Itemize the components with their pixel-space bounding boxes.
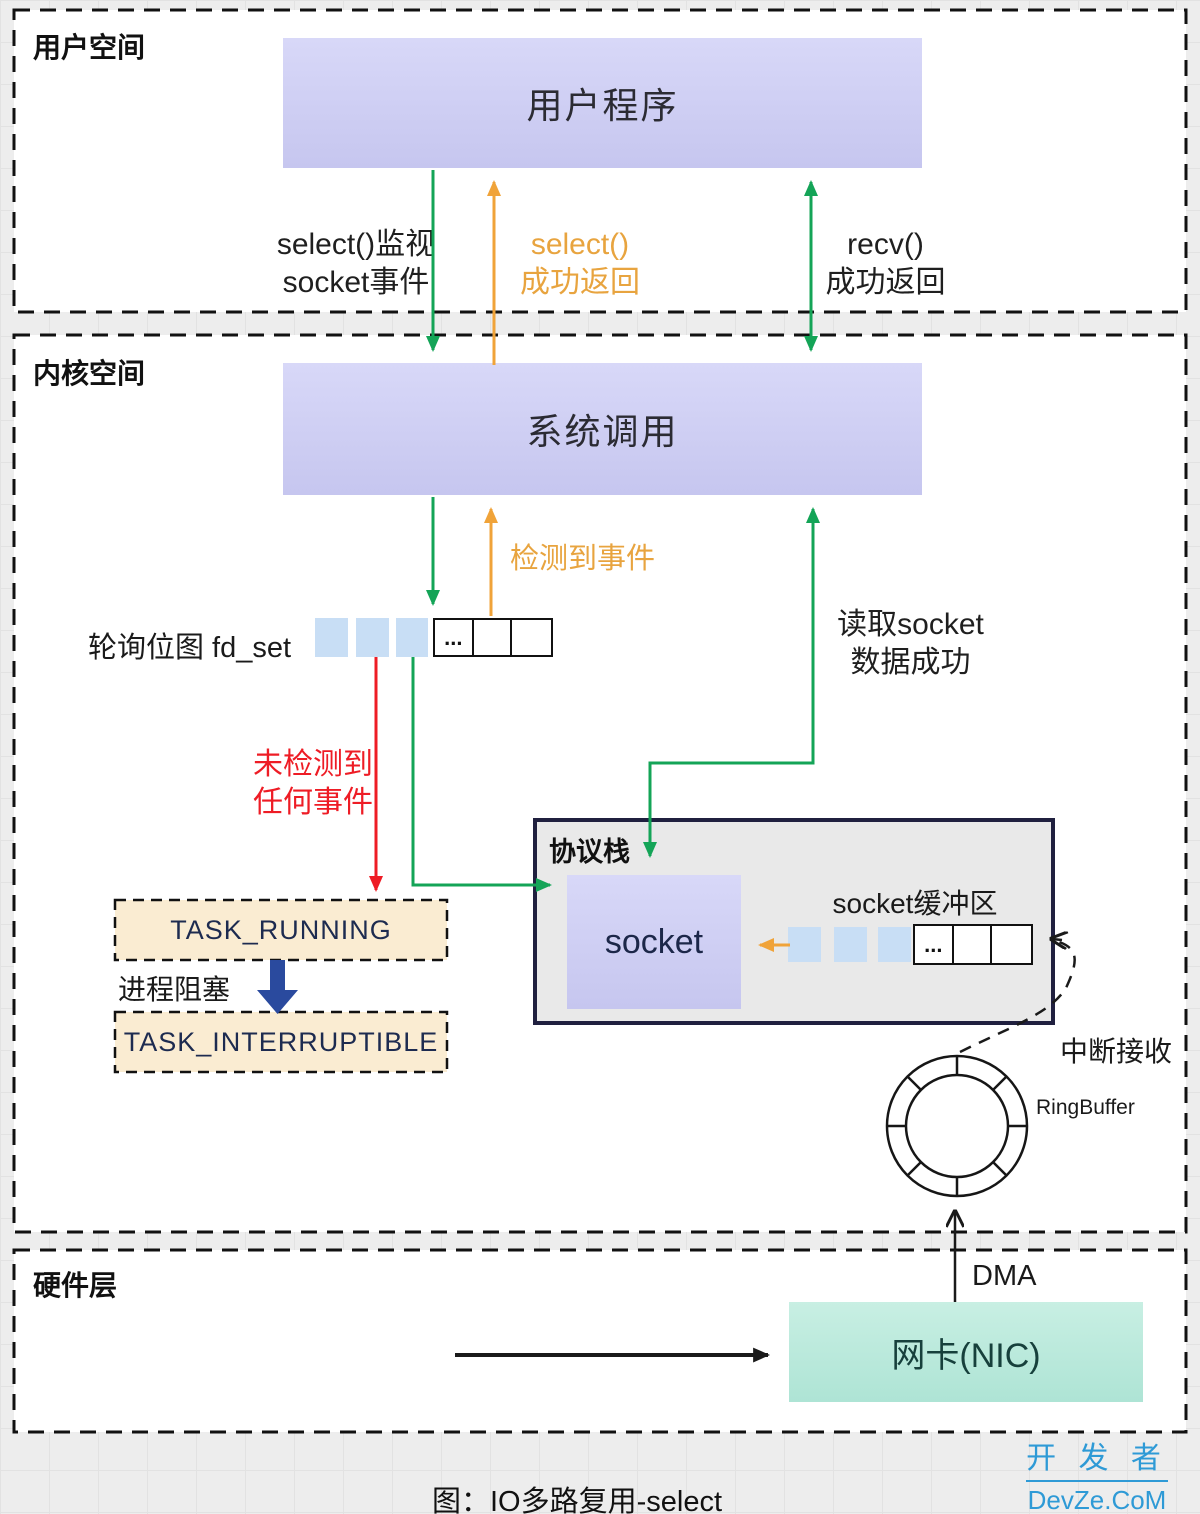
socket-buffer-label: socket缓冲区 bbox=[815, 882, 1015, 922]
kernel-space-label: 内核空间 bbox=[33, 352, 145, 392]
read-socket-line2: 数据成功 bbox=[828, 644, 993, 682]
user-program-box: 用户程序 bbox=[283, 38, 922, 168]
socket-buffer-cells: ... bbox=[913, 924, 1033, 965]
hardware-label: 硬件层 bbox=[33, 1264, 117, 1304]
protocol-stack-label: 协议栈 bbox=[549, 830, 630, 869]
socket-buffer-cell-1 bbox=[788, 927, 821, 962]
no-event-label: 未检测到 任何事件 bbox=[248, 746, 378, 822]
fdset-bit-1 bbox=[315, 618, 348, 657]
socket-buffer-cell-2 bbox=[834, 927, 867, 962]
task-interruptible-box: TASK_INTERRUPTIBLE bbox=[115, 1012, 447, 1072]
read-socket-label: 读取socket 数据成功 bbox=[828, 606, 993, 682]
fdset-cells: ... bbox=[433, 618, 553, 657]
select-return-line2: 成功返回 bbox=[505, 264, 655, 302]
watermark-line2: DevZe.CoM bbox=[1022, 1485, 1172, 1514]
system-call-box: 系统调用 bbox=[283, 363, 922, 495]
fdset-bit-2 bbox=[356, 618, 389, 657]
fdset-cell-2 bbox=[474, 620, 513, 655]
event-detected-label: 检测到事件 bbox=[500, 540, 665, 578]
select-return-label: select() 成功返回 bbox=[505, 226, 655, 302]
interrupt-receive-label: 中断接收 bbox=[1060, 1030, 1172, 1070]
no-event-line1: 未检测到 bbox=[248, 746, 378, 784]
fdset-label: 轮询位图 fd_set bbox=[88, 624, 291, 666]
select-watch-line1: select()监视 bbox=[266, 226, 446, 264]
fdset-bit-3 bbox=[396, 618, 428, 657]
nic-box: 网卡(NIC) bbox=[789, 1302, 1143, 1402]
buffer-cell-ellipsis: ... bbox=[915, 926, 954, 963]
process-block-label: 进程阻塞 bbox=[118, 968, 230, 1008]
read-socket-line1: 读取socket bbox=[828, 606, 993, 644]
user-space-label: 用户空间 bbox=[33, 26, 145, 66]
select-watch-line2: socket事件 bbox=[266, 264, 446, 302]
fdset-cell-3 bbox=[512, 620, 551, 655]
task-running-box: TASK_RUNNING bbox=[115, 900, 447, 960]
recv-return-label: recv() 成功返回 bbox=[808, 226, 963, 302]
no-event-line2: 任何事件 bbox=[248, 784, 378, 822]
socket-box: socket bbox=[567, 875, 741, 1009]
recv-return-line2: 成功返回 bbox=[808, 264, 963, 302]
socket-buffer-cell-3 bbox=[878, 927, 911, 962]
buffer-cell-3 bbox=[992, 926, 1031, 963]
figure-caption: 图：IO多路复用-select bbox=[327, 1478, 827, 1514]
watermark: 开 发 者 DevZe.CoM bbox=[1022, 1433, 1172, 1514]
fdset-cell-ellipsis: ... bbox=[435, 620, 474, 655]
dma-label: DMA bbox=[972, 1260, 1036, 1293]
select-return-line1: select() bbox=[505, 226, 655, 264]
buffer-cell-2 bbox=[954, 926, 993, 963]
select-watch-label: select()监视 socket事件 bbox=[266, 226, 446, 302]
ringbuffer-label: RingBuffer bbox=[1036, 1096, 1135, 1120]
recv-return-line1: recv() bbox=[808, 226, 963, 264]
watermark-line1: 开 发 者 bbox=[1026, 1433, 1168, 1482]
diagram-canvas: 用户空间 内核空间 硬件层 用户程序 系统调用 select()监视 socke… bbox=[0, 0, 1200, 1514]
